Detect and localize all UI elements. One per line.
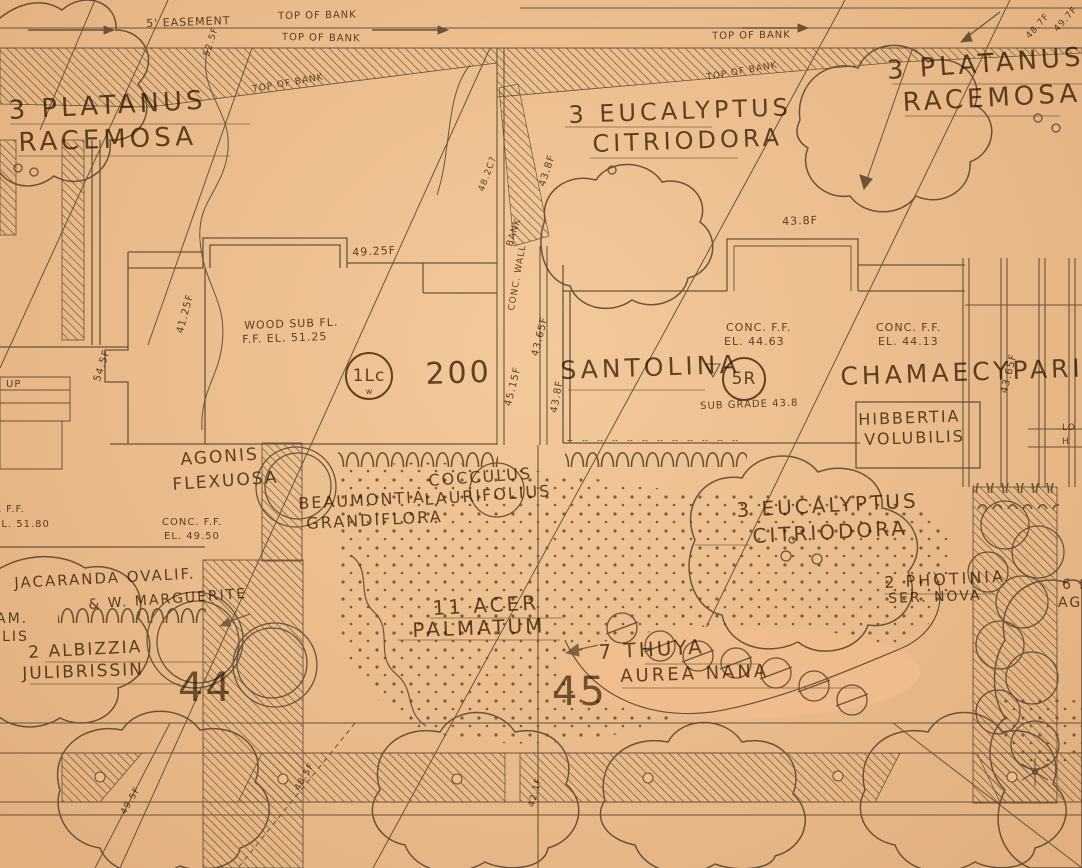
top-of-bank-label: TOP OF BANK xyxy=(278,11,357,22)
plant-label-eucalyptus-top: 3 EUCALYPTUS xyxy=(568,95,792,127)
plant-label-fragment: H xyxy=(1062,438,1070,447)
building-note-left-2: F.F. EL. 51.25 xyxy=(242,331,328,345)
plant-label-fragment: LO xyxy=(1062,424,1076,433)
planting-plan-sheet: 5' EASEMENT TOP OF BANK TOP OF BANK TOP … xyxy=(0,0,1082,868)
spot-elevation: 49.25F xyxy=(352,245,396,258)
plant-ref-circle-1lc: 1Lc w xyxy=(345,352,393,400)
plant-label-fragment: 6 S xyxy=(1062,578,1082,592)
plant-label-thuya-2: AUREA NANA xyxy=(620,663,770,686)
building-note-left: WOOD SUB FL. xyxy=(244,317,339,331)
ref-1lc-subtext: w xyxy=(366,387,373,396)
top-of-bank-label: TOP OF BANK xyxy=(282,33,361,44)
building-note-mid: CONC. F.F. xyxy=(726,322,791,333)
building-note-left-lower: CONC. F.F. xyxy=(162,518,222,528)
parcel-number-45: 45 xyxy=(552,672,607,712)
up-label: UP xyxy=(6,380,21,390)
spot-elevation: 43.8F xyxy=(782,215,818,227)
ref-5r-text: 5R xyxy=(732,369,757,389)
parcel-number-44: 44 xyxy=(178,668,233,708)
building-note-right-2: EL. 44.13 xyxy=(878,336,939,347)
building-note-right: CONC. F.F. xyxy=(876,322,941,333)
plant-label-fragment: AG xyxy=(1058,596,1082,610)
plant-label-santolina: SANTOLINA xyxy=(560,352,741,383)
building-note-mid-2: EL. 44.63 xyxy=(724,336,785,347)
left-wall-columns xyxy=(0,140,128,347)
left-terrace-stairs xyxy=(0,377,70,469)
top-of-bank-label: TOP OF BANK xyxy=(712,31,791,42)
plant-label-eucalyptus-top-2: CITRIODORA xyxy=(592,125,783,156)
plant-label-fragment: ILIS xyxy=(0,630,29,644)
house-number: 200 xyxy=(425,358,492,390)
building-note-left-edge: R F.F. xyxy=(0,505,25,515)
plant-ref-circle-5r: 5R xyxy=(722,357,766,401)
ref-1lc-text: 1Lc xyxy=(353,366,386,386)
easement-label: 5' EASEMENT xyxy=(146,15,231,29)
plant-label-photinia-2: SER. NOVA xyxy=(888,589,982,606)
plant-label-fragment: AM. xyxy=(0,612,28,626)
plant-label-platanus-left-2: RACEMOSA xyxy=(18,124,197,156)
plant-label-acer-2: PALMATUM xyxy=(412,615,546,640)
plant-label-thuya: 7 THUYA xyxy=(598,636,705,662)
building-note-left-edge-2: EL. 51.80 xyxy=(0,520,50,530)
building-note-left-lower-2: EL. 49.50 xyxy=(164,532,220,542)
plant-label-hibbertia-2: VOLUBILIS xyxy=(864,428,965,448)
plant-label-hibbertia: HIBBERTIA xyxy=(858,408,961,428)
plant-label-albizzia-2: JULIBRISSIN xyxy=(22,662,144,683)
